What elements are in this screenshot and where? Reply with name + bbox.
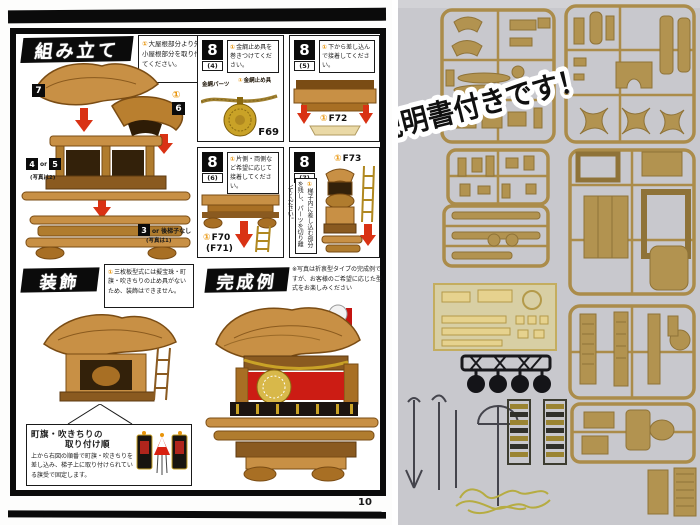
part-id-f73: ①F73 <box>334 154 361 164</box>
step-note-text: 梯子内に差し込む部分を残し、パーツを切り離してください。 <box>286 181 313 248</box>
part-id-text: F72 <box>329 114 348 124</box>
part-id-f71: (F71) <box>206 244 233 254</box>
rope-stopper-text: 金綱止め具 <box>244 78 272 84</box>
decoration-note-text: 三枚板型式には擬宝珠・町旗・吹きちりの止め具がないため、装飾はできません。 <box>108 269 186 295</box>
rope-parts-label: 金綱パーツ <box>202 80 229 88</box>
decoration-title-text: 装飾 <box>38 267 81 293</box>
sprue-photo-illustration: 詳しい説明書付きです！ <box>398 0 700 525</box>
instruction-page: 組み立て ①大屋根部分より先に小屋根部分を取り付けてください。 7 ① 6 4 … <box>0 0 392 525</box>
step-badge-5: 5 <box>49 158 61 170</box>
step-badge-6: 6 <box>172 102 185 115</box>
column-ladder-illustration <box>320 164 378 256</box>
step-substep: (5) <box>294 61 315 71</box>
step-number: 8 <box>294 40 315 60</box>
part-id-text: F73 <box>343 154 362 164</box>
completed-model-illustration <box>200 300 384 486</box>
decoration-title: 装飾 <box>20 267 99 292</box>
note-marker: ① <box>322 44 327 51</box>
etched-fret <box>434 284 556 350</box>
completed-note: ※写真は折衷型タイプの完成例ですが、お客様のご希望に応じた型式をお楽しみください <box>292 265 382 294</box>
page-number: 10 <box>350 497 380 508</box>
decoration-note: ①三枚板型式には擬宝珠・町旗・吹きちりの止め具がないため、装飾はできません。 <box>104 264 194 308</box>
flag-box-title-2: 取り付け順 <box>65 438 110 450</box>
step-note-text: 片側・両側など希望に応じて接着してください。 <box>230 156 272 190</box>
page-bottom-rule <box>8 510 386 518</box>
ladder-icon <box>362 166 374 222</box>
step-note-text: 下から差し込んで接着してください。 <box>322 44 370 69</box>
note-marker: ① <box>238 78 243 84</box>
step-badge-3: 3 <box>138 224 150 236</box>
ladder-icon <box>154 348 170 400</box>
completed-title-text: 完成例 <box>215 267 278 293</box>
note-marker: ① <box>230 44 235 51</box>
shrine-front-illustration <box>30 310 180 402</box>
flag-attachment-box: 町旗・吹きちりの 取り付け順 上から右図の順番で町旗・吹きちりを差し込み、梯子上… <box>26 424 192 486</box>
ladder-icon <box>256 226 270 252</box>
note-marker: ① <box>320 114 328 124</box>
panel-8-5: 8 (5) ①下から差し込んで接着してください。 ①F72 <box>289 35 380 142</box>
step-badge-7: 7 <box>32 84 45 97</box>
part-id-f70: ①F70 <box>203 233 230 243</box>
part-id-f69: F69 <box>258 127 279 138</box>
callout-lines <box>58 404 142 424</box>
step-substep: (4) <box>202 61 223 71</box>
step-badge-4: 4 <box>26 158 38 170</box>
note-marker: ① <box>142 40 148 48</box>
product-image: { "page_number": "10", "marker": "①", "a… <box>0 0 700 525</box>
flag-box-body: 上から右図の順番で町旗・吹きちりを差し込み、梯子上に取り付けられている旗受で固定… <box>31 452 133 480</box>
panel-8-7: 8 (7) ①F73 ①梯子内に差し込む部分を残し、パーツを切り離してください。 <box>289 147 380 258</box>
step-number: 8 <box>202 152 223 172</box>
step-number: 8 <box>202 40 223 60</box>
step-note: ①金綱止め具を巻きつけてください。 <box>227 40 279 73</box>
completed-title: 完成例 <box>204 267 289 292</box>
badge-3-suffix: or 後梯子なし <box>152 226 191 235</box>
step-note: ①片側・両側など希望に応じて接着してください。 <box>227 152 279 194</box>
photo-ref-2: (写真は2) <box>30 173 55 181</box>
note-marker: ① <box>306 181 313 188</box>
step-substep: (6) <box>202 173 223 183</box>
or-label: or <box>40 161 47 168</box>
part-id-f72: ①F72 <box>320 114 347 124</box>
step-note: ①下から差し込んで接着してください。 <box>319 40 375 73</box>
step-badge-1: ① <box>172 90 180 101</box>
part-id-text: F70 <box>212 233 231 243</box>
rope-stopper-label: ①金綱止め具 <box>238 76 271 84</box>
step-number: 8 <box>294 152 315 172</box>
page-top-rule <box>8 8 386 24</box>
panel-8-4: 8 (4) ①金綱止め具を巻きつけてください。 金綱パーツ ①金綱止め具 F69 <box>197 35 284 142</box>
parts-photo: 詳しい説明書付きです！ <box>398 0 700 525</box>
town-flags-illustration <box>135 429 189 483</box>
note-marker: ① <box>334 154 342 164</box>
note-marker: ① <box>108 269 113 276</box>
step-note-text: 金綱止め具を巻きつけてください。 <box>230 44 272 69</box>
step-note-vertical: ①梯子内に差し込む部分を残し、パーツを切り離してください。 <box>295 178 317 254</box>
note-marker: ① <box>203 233 211 243</box>
panel-8-6: 8 (6) ①片側・両側など希望に応じて接着してください。 ①F70 (F71) <box>197 147 284 258</box>
beam-insert-illustration <box>292 76 377 139</box>
note-marker: ① <box>230 156 235 163</box>
photo-ref-1: (写真は1) <box>146 236 171 244</box>
step-badges-3: 3 or 後梯子なし <box>138 224 191 236</box>
step-badges-4-or-5: 4 or 5 <box>26 158 61 170</box>
